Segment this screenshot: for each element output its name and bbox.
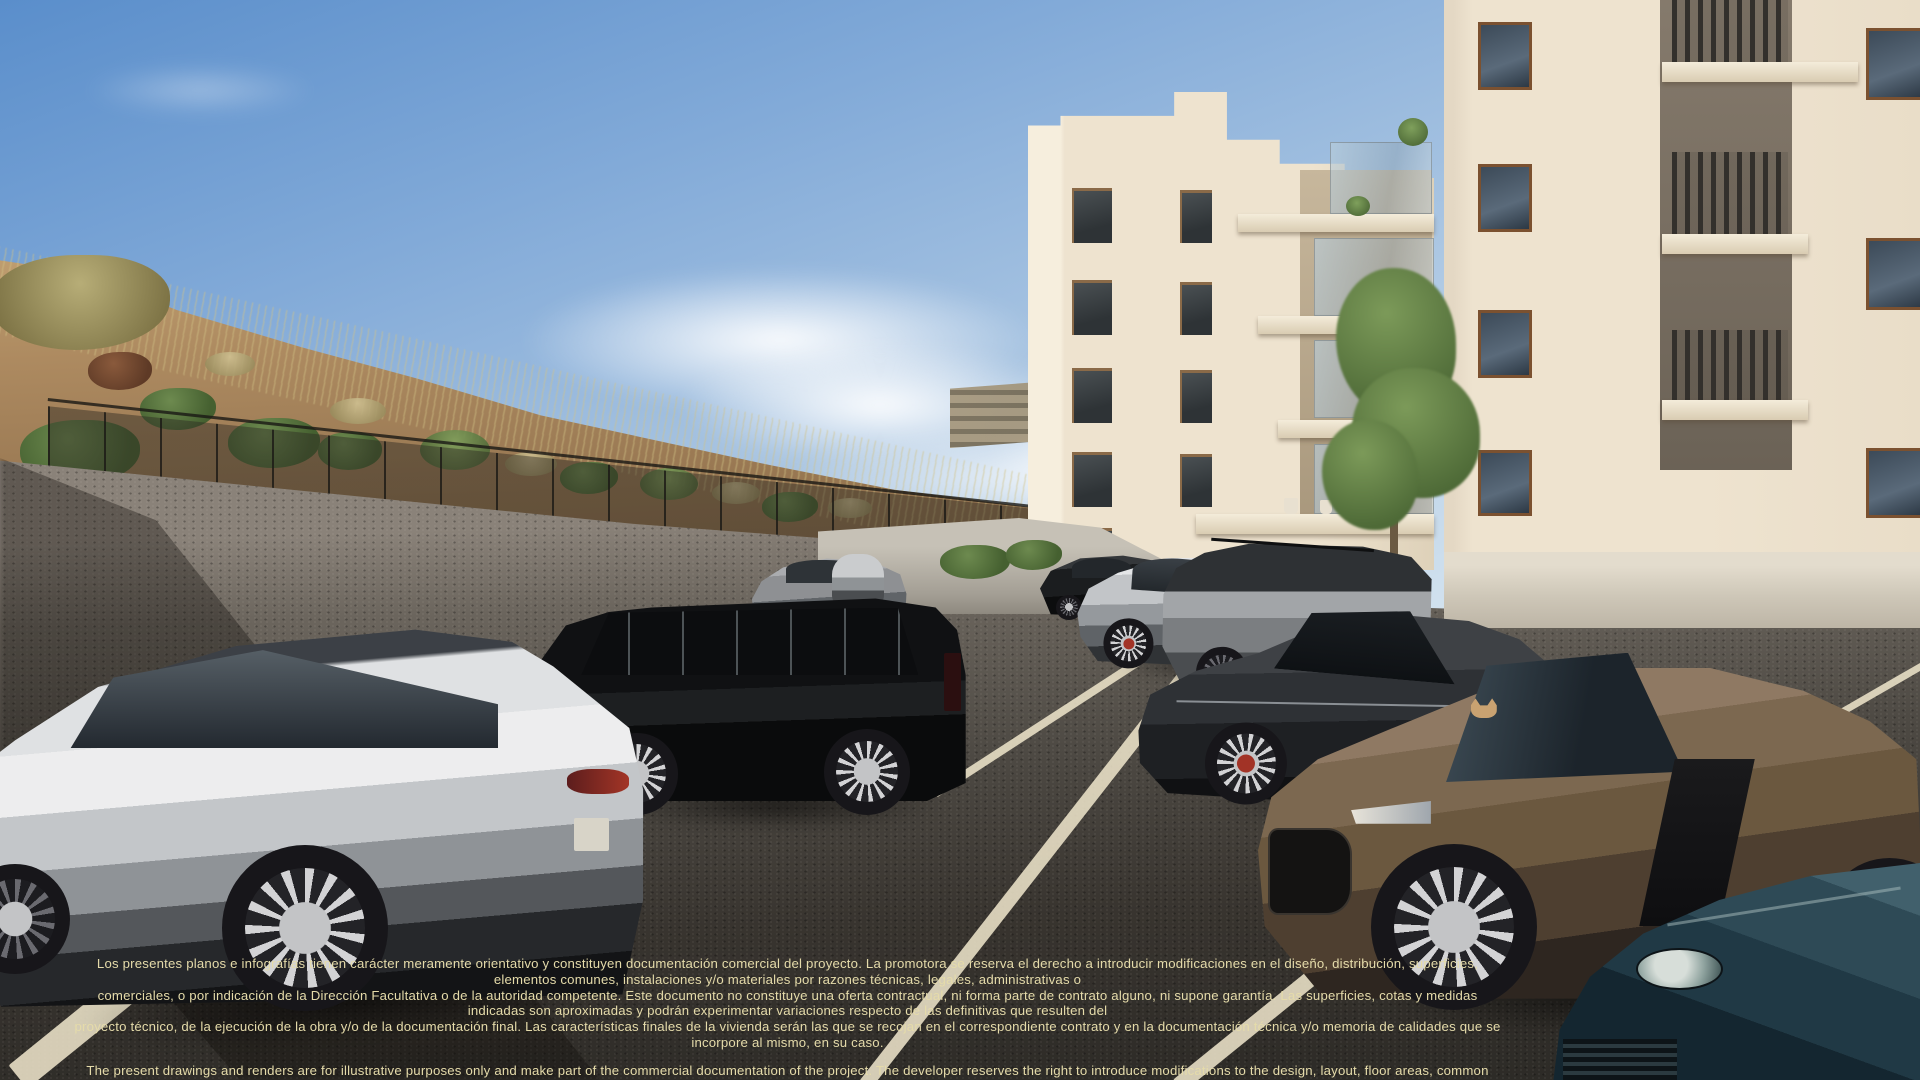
balcony-slab	[1662, 234, 1808, 254]
disclaimer-es-line: proyecto técnico, de la ejecución de la …	[70, 1019, 1505, 1051]
grass-tuft	[330, 398, 386, 424]
slatted-balcony-railing	[1672, 330, 1788, 402]
disclaimer-text: Los presentes planos e infografías tiene…	[70, 956, 1505, 1080]
slatted-balcony-railing	[1672, 0, 1788, 64]
terraced-steps	[950, 382, 1038, 448]
car-grille	[1563, 1039, 1677, 1080]
balcony-slab	[1662, 400, 1808, 420]
window	[1072, 368, 1112, 423]
balcony-plant	[1398, 118, 1428, 146]
window	[1072, 280, 1112, 335]
brake-caliper	[1236, 754, 1256, 774]
car-teal-sports	[1552, 852, 1920, 1080]
balcony-slab	[1238, 214, 1434, 232]
car-taillight	[944, 653, 961, 712]
window	[1072, 188, 1112, 243]
window	[1866, 448, 1920, 518]
slatted-balcony-railing	[1672, 152, 1788, 236]
cloud	[40, 55, 360, 125]
window	[1072, 452, 1112, 507]
disclaimer-es-line: Los presentes planos e infografías tiene…	[70, 956, 1505, 988]
car-taillight	[567, 769, 629, 794]
window	[1478, 22, 1532, 90]
window	[1866, 238, 1920, 310]
window	[1180, 190, 1212, 243]
window	[1478, 310, 1532, 378]
window	[1180, 370, 1212, 423]
disclaimer-es-line: comerciales, o por indicación de la Dire…	[70, 988, 1505, 1020]
wheel	[824, 729, 910, 815]
license-plate	[574, 818, 609, 851]
brake-caliper	[1123, 638, 1135, 650]
balcony-plant	[1346, 196, 1370, 216]
window	[1180, 282, 1212, 335]
window	[1866, 28, 1920, 100]
balcony-slab	[1662, 62, 1858, 82]
render-scene: Los presentes planos e infografías tiene…	[0, 0, 1920, 1080]
car-grille	[1268, 828, 1352, 916]
vase	[1284, 498, 1298, 514]
disclaimer-en-line: The present drawings and renders are for…	[70, 1063, 1505, 1080]
window	[1478, 450, 1532, 516]
window	[1180, 454, 1212, 507]
window	[1478, 164, 1532, 232]
grass-tuft	[205, 352, 255, 376]
car-silver-estate	[0, 605, 650, 1015]
